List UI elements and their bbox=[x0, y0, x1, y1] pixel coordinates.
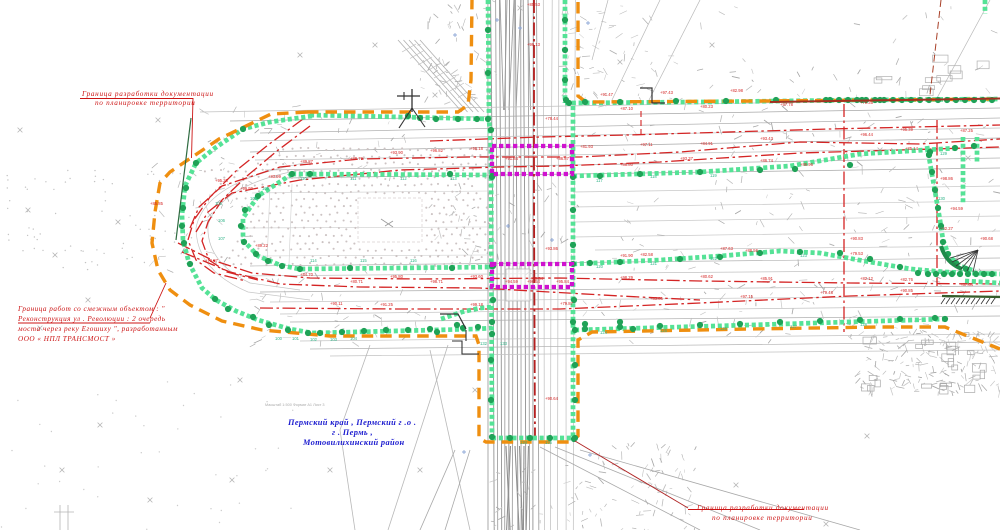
svg-text:+94.59: +94.59 bbox=[505, 279, 519, 284]
svg-text:+93.90: +93.90 bbox=[390, 150, 404, 155]
svg-text:моста через реку Егошиху ", ра: моста через реку Егошиху ", разработанны… bbox=[17, 325, 178, 333]
svg-text:122: 122 bbox=[710, 256, 718, 261]
svg-text:+88.80: +88.80 bbox=[620, 162, 634, 167]
svg-text:+94.59: +94.59 bbox=[950, 206, 964, 211]
svg-text:107: 107 bbox=[218, 236, 226, 241]
svg-text:Граница работ со смежным объек: Граница работ со смежным объектом : " bbox=[17, 305, 165, 313]
svg-text:102: 102 bbox=[310, 337, 318, 342]
svg-text:111: 111 bbox=[350, 176, 357, 181]
svg-text:108: 108 bbox=[250, 196, 258, 201]
svg-text:+80.23: +80.23 bbox=[700, 104, 714, 109]
svg-text:+89.22: +89.22 bbox=[255, 243, 269, 248]
svg-text:+97.78: +97.78 bbox=[780, 102, 794, 107]
svg-text:110: 110 bbox=[300, 176, 307, 181]
svg-text:+95.39: +95.39 bbox=[900, 127, 914, 132]
svg-text:+93.43: +93.43 bbox=[760, 136, 774, 141]
svg-text:Пермский край , Пермский г .о: Пермский край , Пермский г .о . bbox=[287, 418, 416, 427]
svg-text:Реконструкция ул . Революции :: Реконструкция ул . Революции : 2 очередь bbox=[17, 315, 166, 323]
svg-text:117: 117 bbox=[596, 178, 603, 183]
svg-text:118: 118 bbox=[650, 174, 657, 179]
svg-text:+98.29: +98.29 bbox=[620, 275, 634, 280]
svg-text:+82.12: +82.12 bbox=[860, 276, 874, 281]
svg-text:+98.86: +98.86 bbox=[940, 176, 954, 181]
svg-text:+89.87: +89.87 bbox=[300, 159, 314, 164]
svg-text:+90.83: +90.83 bbox=[850, 236, 864, 241]
svg-text:124: 124 bbox=[600, 330, 608, 335]
svg-text:+78.44: +78.44 bbox=[545, 116, 559, 121]
svg-text:Мотовилихинский район: Мотовилихинский район bbox=[302, 438, 405, 447]
svg-text:103: 103 bbox=[330, 337, 338, 342]
svg-text:+85.91: +85.91 bbox=[760, 276, 774, 281]
svg-text:+85.14: +85.14 bbox=[905, 146, 919, 151]
svg-text:+95.84: +95.84 bbox=[556, 279, 570, 284]
svg-text:+91.84: +91.84 bbox=[505, 156, 519, 161]
svg-text:100: 100 bbox=[275, 336, 283, 341]
svg-text:+91.90: +91.90 bbox=[620, 253, 634, 258]
svg-text:+85.85: +85.85 bbox=[150, 201, 164, 206]
svg-text:+90.85: +90.85 bbox=[900, 288, 914, 293]
svg-text:+95.26: +95.26 bbox=[215, 178, 229, 183]
svg-text:+93.86: +93.86 bbox=[545, 246, 559, 251]
svg-text:+82.58: +82.58 bbox=[640, 252, 654, 257]
svg-text:+84.91: +84.91 bbox=[700, 141, 714, 146]
svg-text:132: 132 bbox=[480, 341, 488, 346]
svg-text:+97.43: +97.43 bbox=[660, 90, 674, 95]
svg-text:121: 121 bbox=[650, 261, 658, 266]
svg-text:101: 101 bbox=[292, 336, 300, 341]
svg-text:по планировке территории: по планировке территории bbox=[712, 514, 813, 522]
svg-text:+93.37: +93.37 bbox=[680, 156, 694, 161]
svg-text:105: 105 bbox=[215, 201, 223, 206]
svg-text:112: 112 bbox=[400, 176, 407, 181]
svg-text:+80.71: +80.71 bbox=[350, 279, 364, 284]
svg-text:+91.47: +91.47 bbox=[600, 92, 614, 97]
svg-text:+95.80: +95.80 bbox=[390, 274, 404, 279]
svg-text:+99.18: +99.18 bbox=[470, 302, 484, 307]
svg-text:+96.44: +96.44 bbox=[860, 132, 874, 137]
svg-text:+90.64: +90.64 bbox=[545, 396, 559, 401]
svg-text:126: 126 bbox=[720, 326, 728, 331]
svg-text:134: 134 bbox=[520, 440, 528, 445]
svg-text:119: 119 bbox=[710, 173, 717, 178]
svg-text:+90.68: +90.68 bbox=[980, 236, 994, 241]
svg-text:116: 116 bbox=[410, 258, 417, 263]
svg-text:+79.87: +79.87 bbox=[560, 301, 574, 306]
svg-text:128: 128 bbox=[860, 322, 868, 327]
svg-text:+82.98: +82.98 bbox=[730, 88, 744, 93]
svg-text:+98.71: +98.71 bbox=[430, 279, 444, 284]
svg-text:123: 123 bbox=[800, 253, 808, 258]
svg-text:+84.70: +84.70 bbox=[300, 272, 314, 277]
svg-text:+87.10: +87.10 bbox=[620, 106, 634, 111]
svg-text:Масштаб 1:500 Формат А1 Ли: Масштаб 1:500 Формат А1 Лист 3 bbox=[265, 403, 325, 407]
svg-text:+87.25: +87.25 bbox=[960, 128, 974, 133]
svg-text:по планировке территории: по планировке территории bbox=[95, 99, 196, 107]
svg-text:109: 109 bbox=[262, 186, 270, 191]
svg-text:+99.99: +99.99 bbox=[240, 186, 254, 191]
svg-text:Граница разработки документаци: Граница разработки документации bbox=[81, 90, 214, 98]
svg-text:Граница разработки документаци: Граница разработки документации bbox=[696, 504, 829, 512]
svg-text:+97.15: +97.15 bbox=[740, 294, 754, 299]
svg-text:+83.85: +83.85 bbox=[650, 296, 664, 301]
svg-text:+88.56: +88.56 bbox=[745, 248, 759, 253]
svg-text:+86.87: +86.87 bbox=[556, 156, 570, 161]
svg-text:113: 113 bbox=[450, 176, 457, 181]
svg-text:+79.48: +79.48 bbox=[820, 290, 834, 295]
svg-text:130: 130 bbox=[938, 196, 946, 201]
svg-text:+79.35: +79.35 bbox=[860, 100, 874, 105]
svg-text:+88.79: +88.79 bbox=[350, 156, 364, 161]
svg-text:127: 127 bbox=[790, 324, 798, 329]
svg-text:ООО « НПЛ ТРАНСМОСТ »: ООО « НПЛ ТРАНСМОСТ » bbox=[18, 335, 116, 343]
svg-text:+93.60: +93.60 bbox=[470, 274, 484, 279]
svg-text:129: 129 bbox=[940, 151, 948, 156]
svg-text:+91.25: +91.25 bbox=[380, 302, 394, 307]
svg-text:+96.82: +96.82 bbox=[430, 148, 444, 153]
svg-text:г . Пермь ,: г . Пермь , bbox=[332, 428, 373, 437]
svg-text:+86.96: +86.96 bbox=[800, 162, 814, 167]
svg-text:114: 114 bbox=[310, 258, 317, 263]
svg-text:+83.99: +83.99 bbox=[268, 174, 282, 179]
svg-text:+79.53: +79.53 bbox=[850, 251, 864, 256]
svg-text:+79.27: +79.27 bbox=[205, 258, 219, 263]
svg-text:+81.93: +81.93 bbox=[580, 144, 594, 149]
svg-text:133: 133 bbox=[500, 341, 508, 346]
svg-text:131: 131 bbox=[938, 226, 946, 231]
svg-text:+90.11: +90.11 bbox=[330, 301, 343, 306]
svg-text:+80.54: +80.54 bbox=[530, 276, 544, 281]
svg-text:+85.53: +85.53 bbox=[527, 2, 541, 7]
svg-text:135: 135 bbox=[545, 440, 553, 445]
svg-text:125: 125 bbox=[660, 328, 668, 333]
svg-text:+96.18: +96.18 bbox=[470, 146, 484, 151]
svg-text:106: 106 bbox=[218, 218, 226, 223]
svg-text:120: 120 bbox=[596, 264, 604, 269]
svg-text:+80.62: +80.62 bbox=[700, 274, 714, 279]
svg-text:104: 104 bbox=[350, 336, 358, 341]
svg-text:+87.63: +87.63 bbox=[720, 246, 734, 251]
svg-text:+97.11: +97.11 bbox=[640, 142, 653, 147]
svg-text:+82.76: +82.76 bbox=[900, 277, 914, 282]
svg-text:115: 115 bbox=[360, 258, 367, 263]
svg-text:+87.64: +87.64 bbox=[960, 282, 974, 287]
svg-text:+86.74: +86.74 bbox=[760, 158, 774, 163]
svg-text:+99.13: +99.13 bbox=[527, 42, 541, 47]
